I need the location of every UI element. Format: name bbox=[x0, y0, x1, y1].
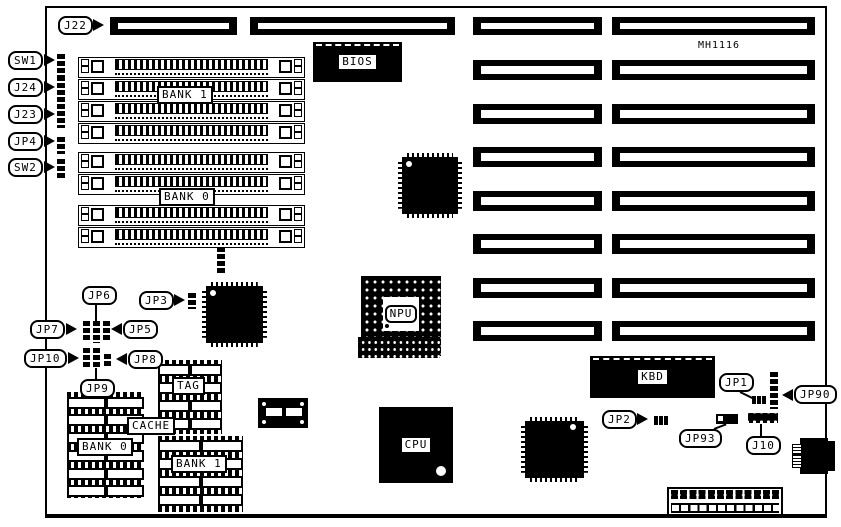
tag-label: TAG bbox=[172, 377, 205, 395]
callout-jp8: JP8 bbox=[128, 350, 163, 369]
dip-chip bbox=[67, 397, 144, 409]
simm-clip bbox=[81, 59, 107, 74]
callout-jp9: JP9 bbox=[80, 379, 115, 398]
pin1-dot bbox=[385, 324, 389, 328]
callout-arrow bbox=[111, 323, 122, 335]
cpu-label: CPU bbox=[400, 436, 433, 454]
sw1-block bbox=[57, 54, 65, 76]
j10-header bbox=[748, 413, 778, 423]
callout-jp90: JP90 bbox=[794, 385, 837, 404]
jp6-jumper bbox=[93, 321, 100, 343]
callout-jp6: JP6 bbox=[82, 286, 117, 305]
cache-bank1-label: BANK 1 bbox=[171, 455, 227, 473]
simm-socket bbox=[78, 205, 305, 226]
simm-clip bbox=[81, 81, 107, 96]
dip-chip bbox=[67, 485, 144, 497]
callout-j22: J22 bbox=[58, 16, 93, 35]
cpu-chip: CPU bbox=[379, 407, 453, 483]
isa-slot-long bbox=[612, 60, 815, 80]
simm-clip bbox=[276, 207, 302, 222]
simm-clip bbox=[276, 176, 302, 191]
jp5-jumper bbox=[103, 321, 110, 340]
isa-slot-short bbox=[473, 17, 602, 35]
jp10-jumper bbox=[83, 348, 90, 367]
jp2-jumper bbox=[654, 416, 668, 425]
callout-arrow bbox=[637, 413, 648, 425]
isa-slot-short bbox=[473, 60, 602, 80]
callout-arrow bbox=[44, 54, 55, 66]
callout-jp10: JP10 bbox=[24, 349, 67, 368]
npu-socket-center: NPU bbox=[383, 297, 419, 331]
callout-jp4: JP4 bbox=[8, 132, 43, 151]
j23-block bbox=[57, 97, 65, 128]
callout-line bbox=[95, 368, 97, 379]
simm-clip bbox=[276, 154, 302, 169]
simm-bank1-label: BANK 1 bbox=[157, 86, 213, 104]
isa-slot-short bbox=[473, 147, 602, 167]
simm-clip bbox=[81, 229, 107, 244]
dip-chip bbox=[158, 440, 243, 452]
qfp-chip bbox=[202, 282, 267, 347]
npu-label: NPU bbox=[385, 305, 418, 323]
callout-arrow bbox=[44, 81, 55, 93]
top-connector bbox=[250, 17, 455, 35]
isa-slot-short bbox=[473, 278, 602, 298]
callout-arrow bbox=[66, 323, 77, 335]
pad-dot bbox=[300, 402, 304, 406]
simm-clip bbox=[276, 229, 302, 244]
jp93-jumper bbox=[716, 414, 738, 424]
jp90-jumper bbox=[770, 372, 778, 409]
jp8-jumper bbox=[104, 354, 111, 367]
jp9-jumper bbox=[93, 348, 100, 369]
pin1-dot bbox=[570, 424, 576, 430]
pin1-dot bbox=[210, 290, 216, 296]
pin-grid-header bbox=[358, 337, 440, 358]
cache-bank1-sockets bbox=[158, 436, 243, 512]
simm-socket bbox=[78, 101, 305, 122]
isa-slot-long bbox=[612, 321, 815, 341]
pad-dot bbox=[262, 402, 266, 406]
jp4-block bbox=[57, 137, 65, 154]
callout-jp7: JP7 bbox=[30, 320, 65, 339]
isa-slot-short bbox=[473, 234, 602, 254]
pad-dot bbox=[300, 420, 304, 424]
callout-arrow bbox=[68, 352, 79, 364]
motherboard-diagram: MH1116 BANK 1 BANK 0 BIOS NPU CPU bbox=[0, 0, 841, 527]
simm-clip bbox=[81, 125, 107, 140]
simm-bank0-label: BANK 0 bbox=[159, 188, 215, 206]
simm-clip bbox=[81, 207, 107, 222]
oscillator bbox=[258, 398, 308, 428]
board-part-number: MH1116 bbox=[684, 40, 754, 52]
callout-arrow bbox=[44, 135, 55, 147]
keyboard-din-connector bbox=[800, 438, 828, 474]
callout-arrow bbox=[174, 294, 185, 306]
isa-slot-long bbox=[612, 17, 815, 35]
isa-slot-short bbox=[473, 321, 602, 341]
simm-clip bbox=[276, 103, 302, 118]
connector-j22 bbox=[110, 17, 237, 35]
callout-arrow bbox=[116, 353, 127, 365]
pad-dot bbox=[262, 420, 266, 424]
dip-chip bbox=[158, 364, 222, 376]
callout-jp3: JP3 bbox=[139, 291, 174, 310]
jp3-jumper bbox=[188, 293, 196, 309]
cache-bank0-label: BANK 0 bbox=[77, 438, 133, 456]
callout-line bbox=[95, 303, 97, 321]
isa-slot-long bbox=[612, 191, 815, 211]
isa-slot-long bbox=[612, 104, 815, 124]
qfp-chip bbox=[521, 417, 588, 482]
simm-clip bbox=[276, 125, 302, 140]
cache-label: CACHE bbox=[127, 417, 175, 435]
simm-socket bbox=[78, 123, 305, 144]
simm-socket bbox=[78, 57, 305, 78]
power-pins bbox=[671, 490, 779, 499]
osc-window bbox=[266, 408, 282, 416]
simm-clip bbox=[81, 103, 107, 118]
simm-clip bbox=[276, 59, 302, 74]
dip-chip bbox=[158, 494, 243, 506]
power-sockets bbox=[671, 503, 779, 513]
simm-clip bbox=[81, 176, 107, 191]
qfp-chip bbox=[398, 153, 462, 218]
pin1-dot bbox=[406, 161, 412, 167]
isa-slot-long bbox=[612, 234, 815, 254]
dip-chip bbox=[67, 468, 144, 480]
power-connector bbox=[667, 487, 783, 516]
pin-header bbox=[217, 247, 225, 273]
simm-socket bbox=[78, 227, 305, 248]
kbd-chip: KBD bbox=[590, 356, 715, 398]
din-solder-tab bbox=[792, 455, 802, 468]
callout-arrow bbox=[93, 19, 104, 31]
jp7-jumper bbox=[83, 321, 90, 340]
isa-slot-short bbox=[473, 191, 602, 211]
callout-sw1: SW1 bbox=[8, 51, 43, 70]
simm-clip bbox=[81, 154, 107, 169]
callout-jp1: JP1 bbox=[719, 373, 754, 392]
callout-jp93: JP93 bbox=[679, 429, 722, 448]
pin1-dot bbox=[436, 466, 446, 476]
callout-j10: J10 bbox=[746, 436, 781, 455]
callout-jp5: JP5 bbox=[123, 320, 158, 339]
callout-jp2: JP2 bbox=[602, 410, 637, 429]
keyboard-din-connector-stub bbox=[827, 441, 835, 471]
isa-slot-long bbox=[612, 147, 815, 167]
dip-chip bbox=[158, 400, 222, 412]
osc-window bbox=[286, 408, 302, 416]
callout-line bbox=[760, 424, 762, 436]
isa-slot-long bbox=[612, 278, 815, 298]
callout-arrow bbox=[44, 108, 55, 120]
kbd-label: KBD bbox=[636, 368, 669, 386]
simm-clip bbox=[276, 81, 302, 96]
sw2-block bbox=[57, 159, 65, 179]
din-solder-tab bbox=[792, 444, 802, 455]
simm-socket bbox=[78, 152, 305, 173]
callout-j23: J23 bbox=[8, 105, 43, 124]
callout-sw2: SW2 bbox=[8, 158, 43, 177]
dip-chip bbox=[158, 476, 243, 488]
callout-arrow bbox=[44, 161, 55, 173]
isa-slot-short bbox=[473, 104, 602, 124]
bios-chip: BIOS bbox=[313, 42, 402, 82]
callout-arrow bbox=[782, 389, 793, 401]
callout-j24: J24 bbox=[8, 78, 43, 97]
bios-label: BIOS bbox=[337, 53, 378, 71]
